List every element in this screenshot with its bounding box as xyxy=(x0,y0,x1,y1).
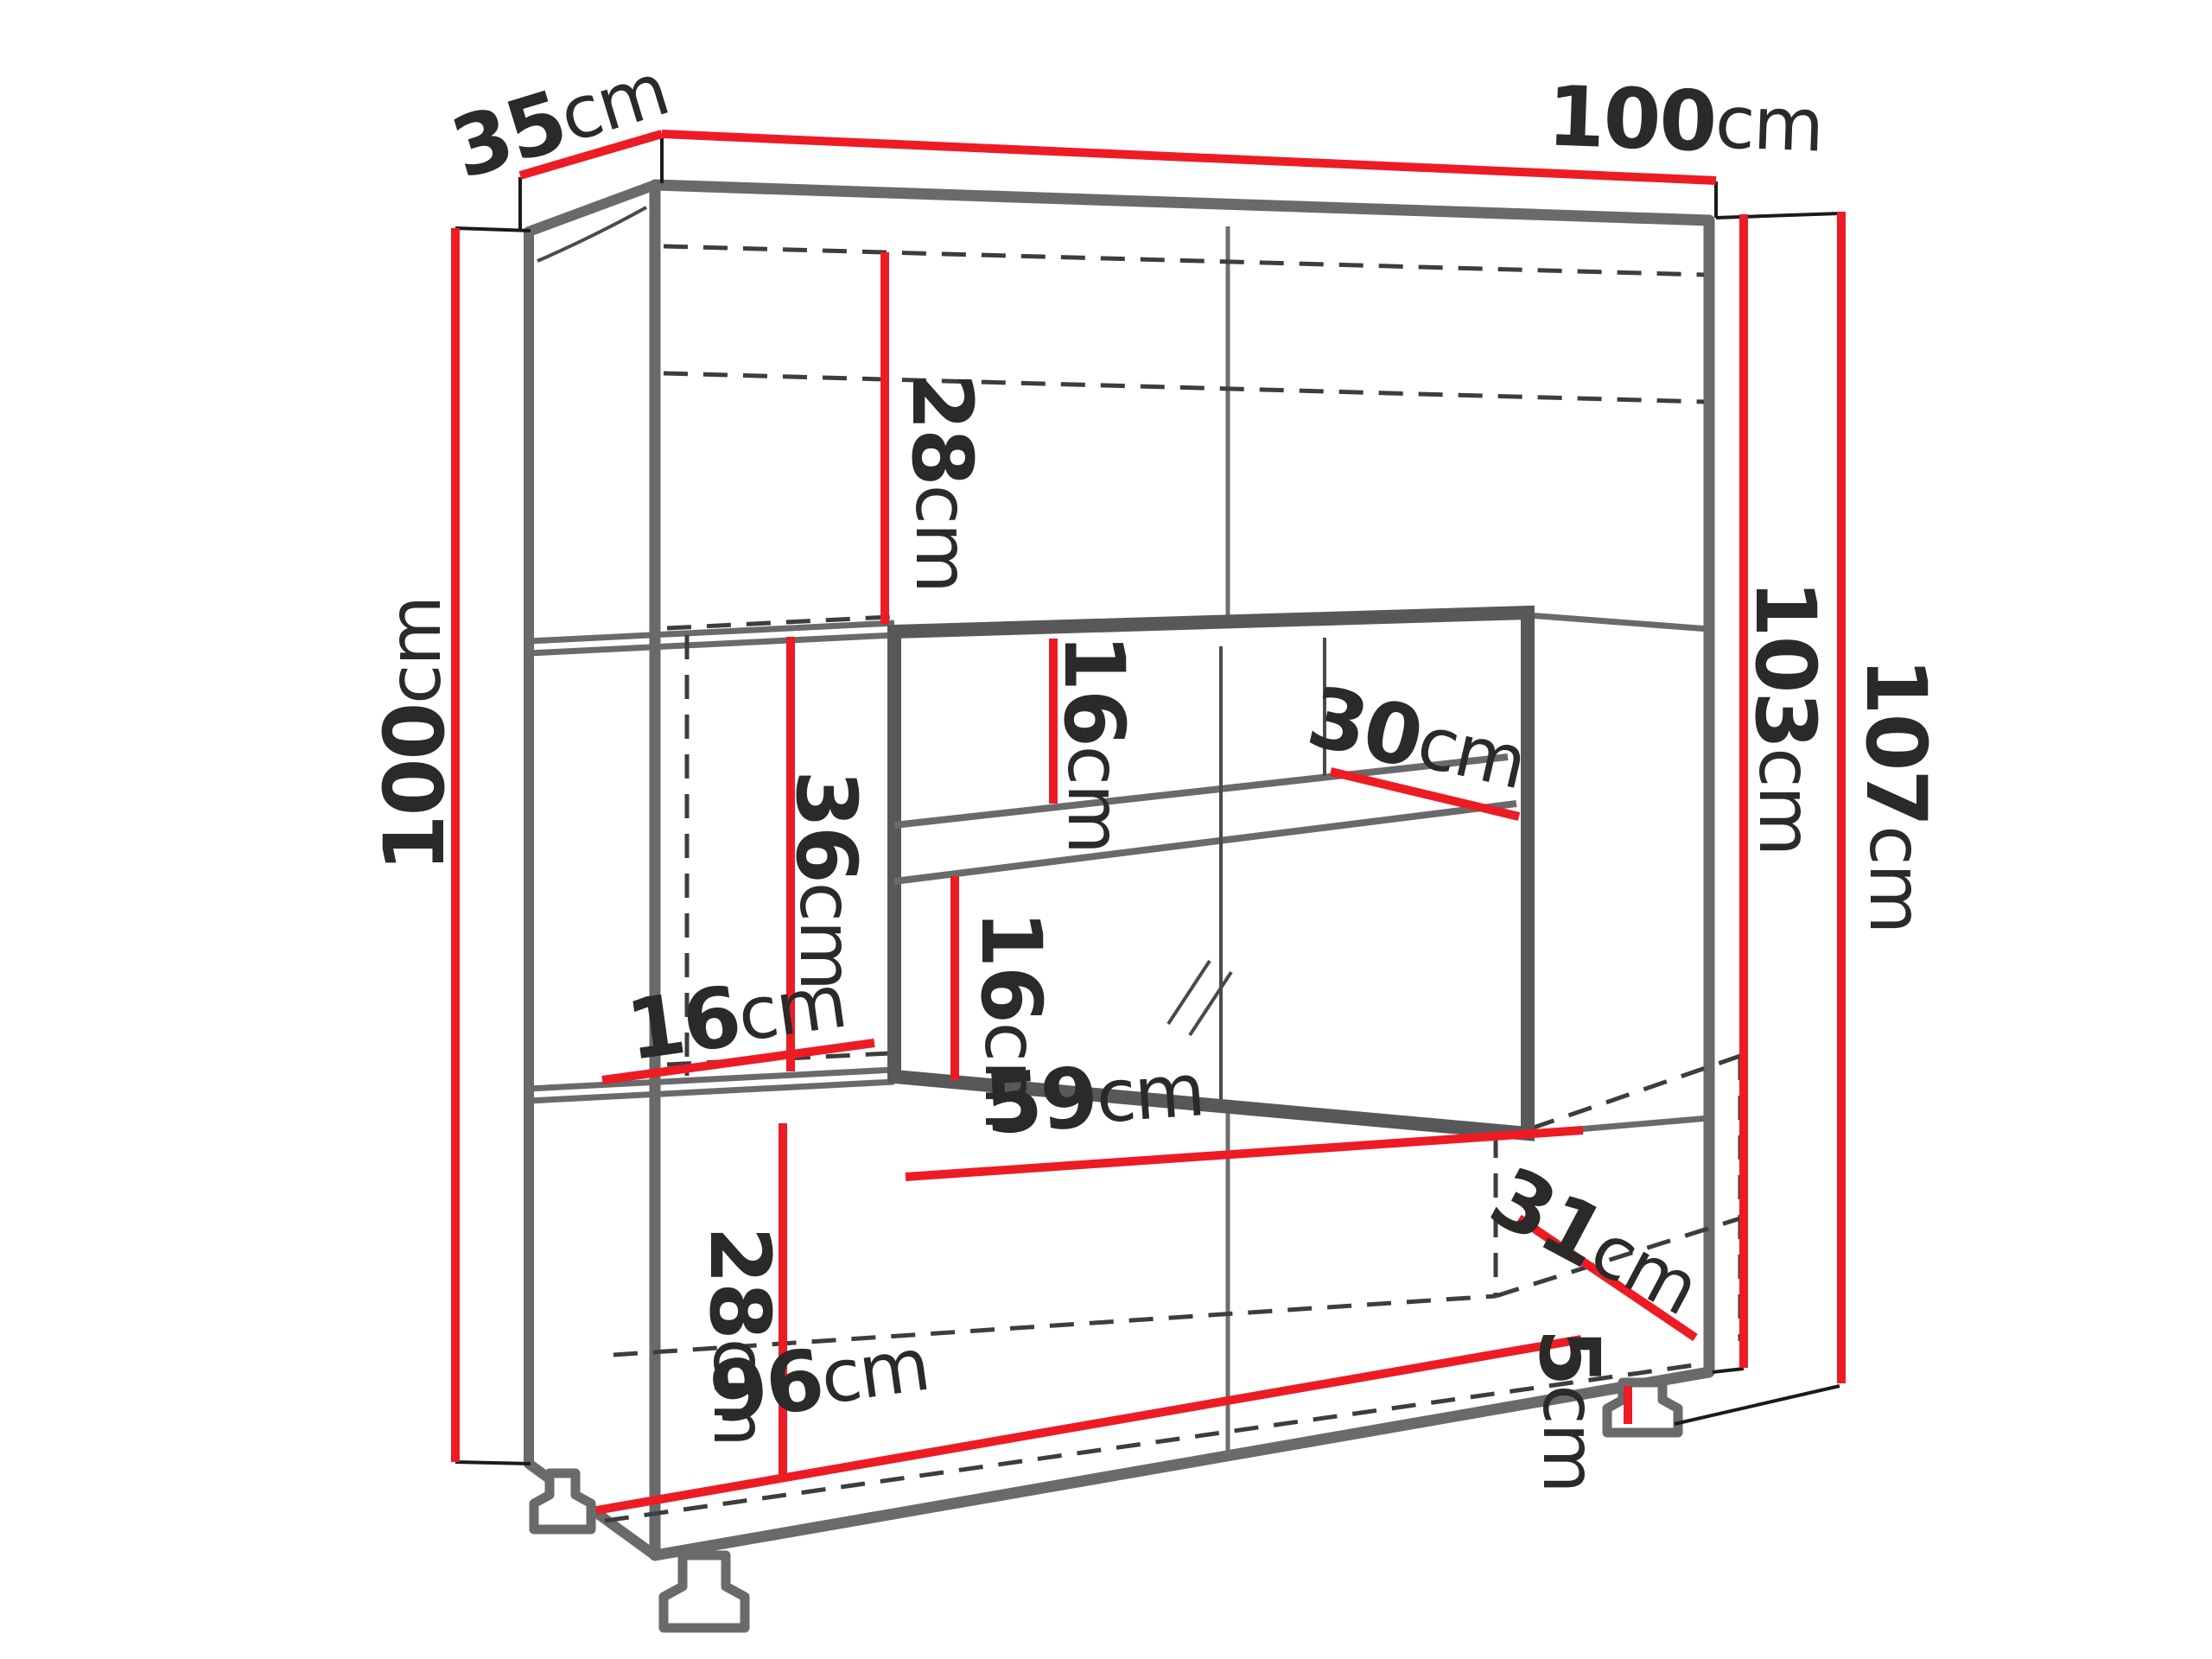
left-side-panel xyxy=(529,185,655,1555)
label-depth-top: 35cm xyxy=(441,41,678,197)
leg-front-left xyxy=(664,1555,745,1628)
label-glass-upper-height: 16cm xyxy=(1046,633,1142,853)
ext-total-height-bottom xyxy=(1675,1386,1840,1424)
label-body-height-right: 103cm xyxy=(1737,580,1834,855)
ext-height-left-bottom xyxy=(455,1462,531,1464)
label-total-height-right: 107cm xyxy=(1847,658,1944,932)
label-top-compartment-height: 28cm xyxy=(893,372,990,592)
ext-body-height-bottom xyxy=(1713,1369,1744,1372)
ext-right-top xyxy=(1716,213,1840,218)
label-middle-left-height: 36cm xyxy=(778,770,874,989)
dimension-diagram: 35cm 100cm 100cm 28cm 16cm 30cm 36cm 16c… xyxy=(0,0,2212,1659)
cabinet-drawing: 35cm 100cm 100cm 28cm 16cm 30cm 36cm 16c… xyxy=(0,0,2212,1659)
label-height-front-left: 100cm xyxy=(366,597,463,872)
label-width-top: 100cm xyxy=(1546,67,1824,174)
label-leg-height: 5cm xyxy=(1521,1329,1618,1492)
